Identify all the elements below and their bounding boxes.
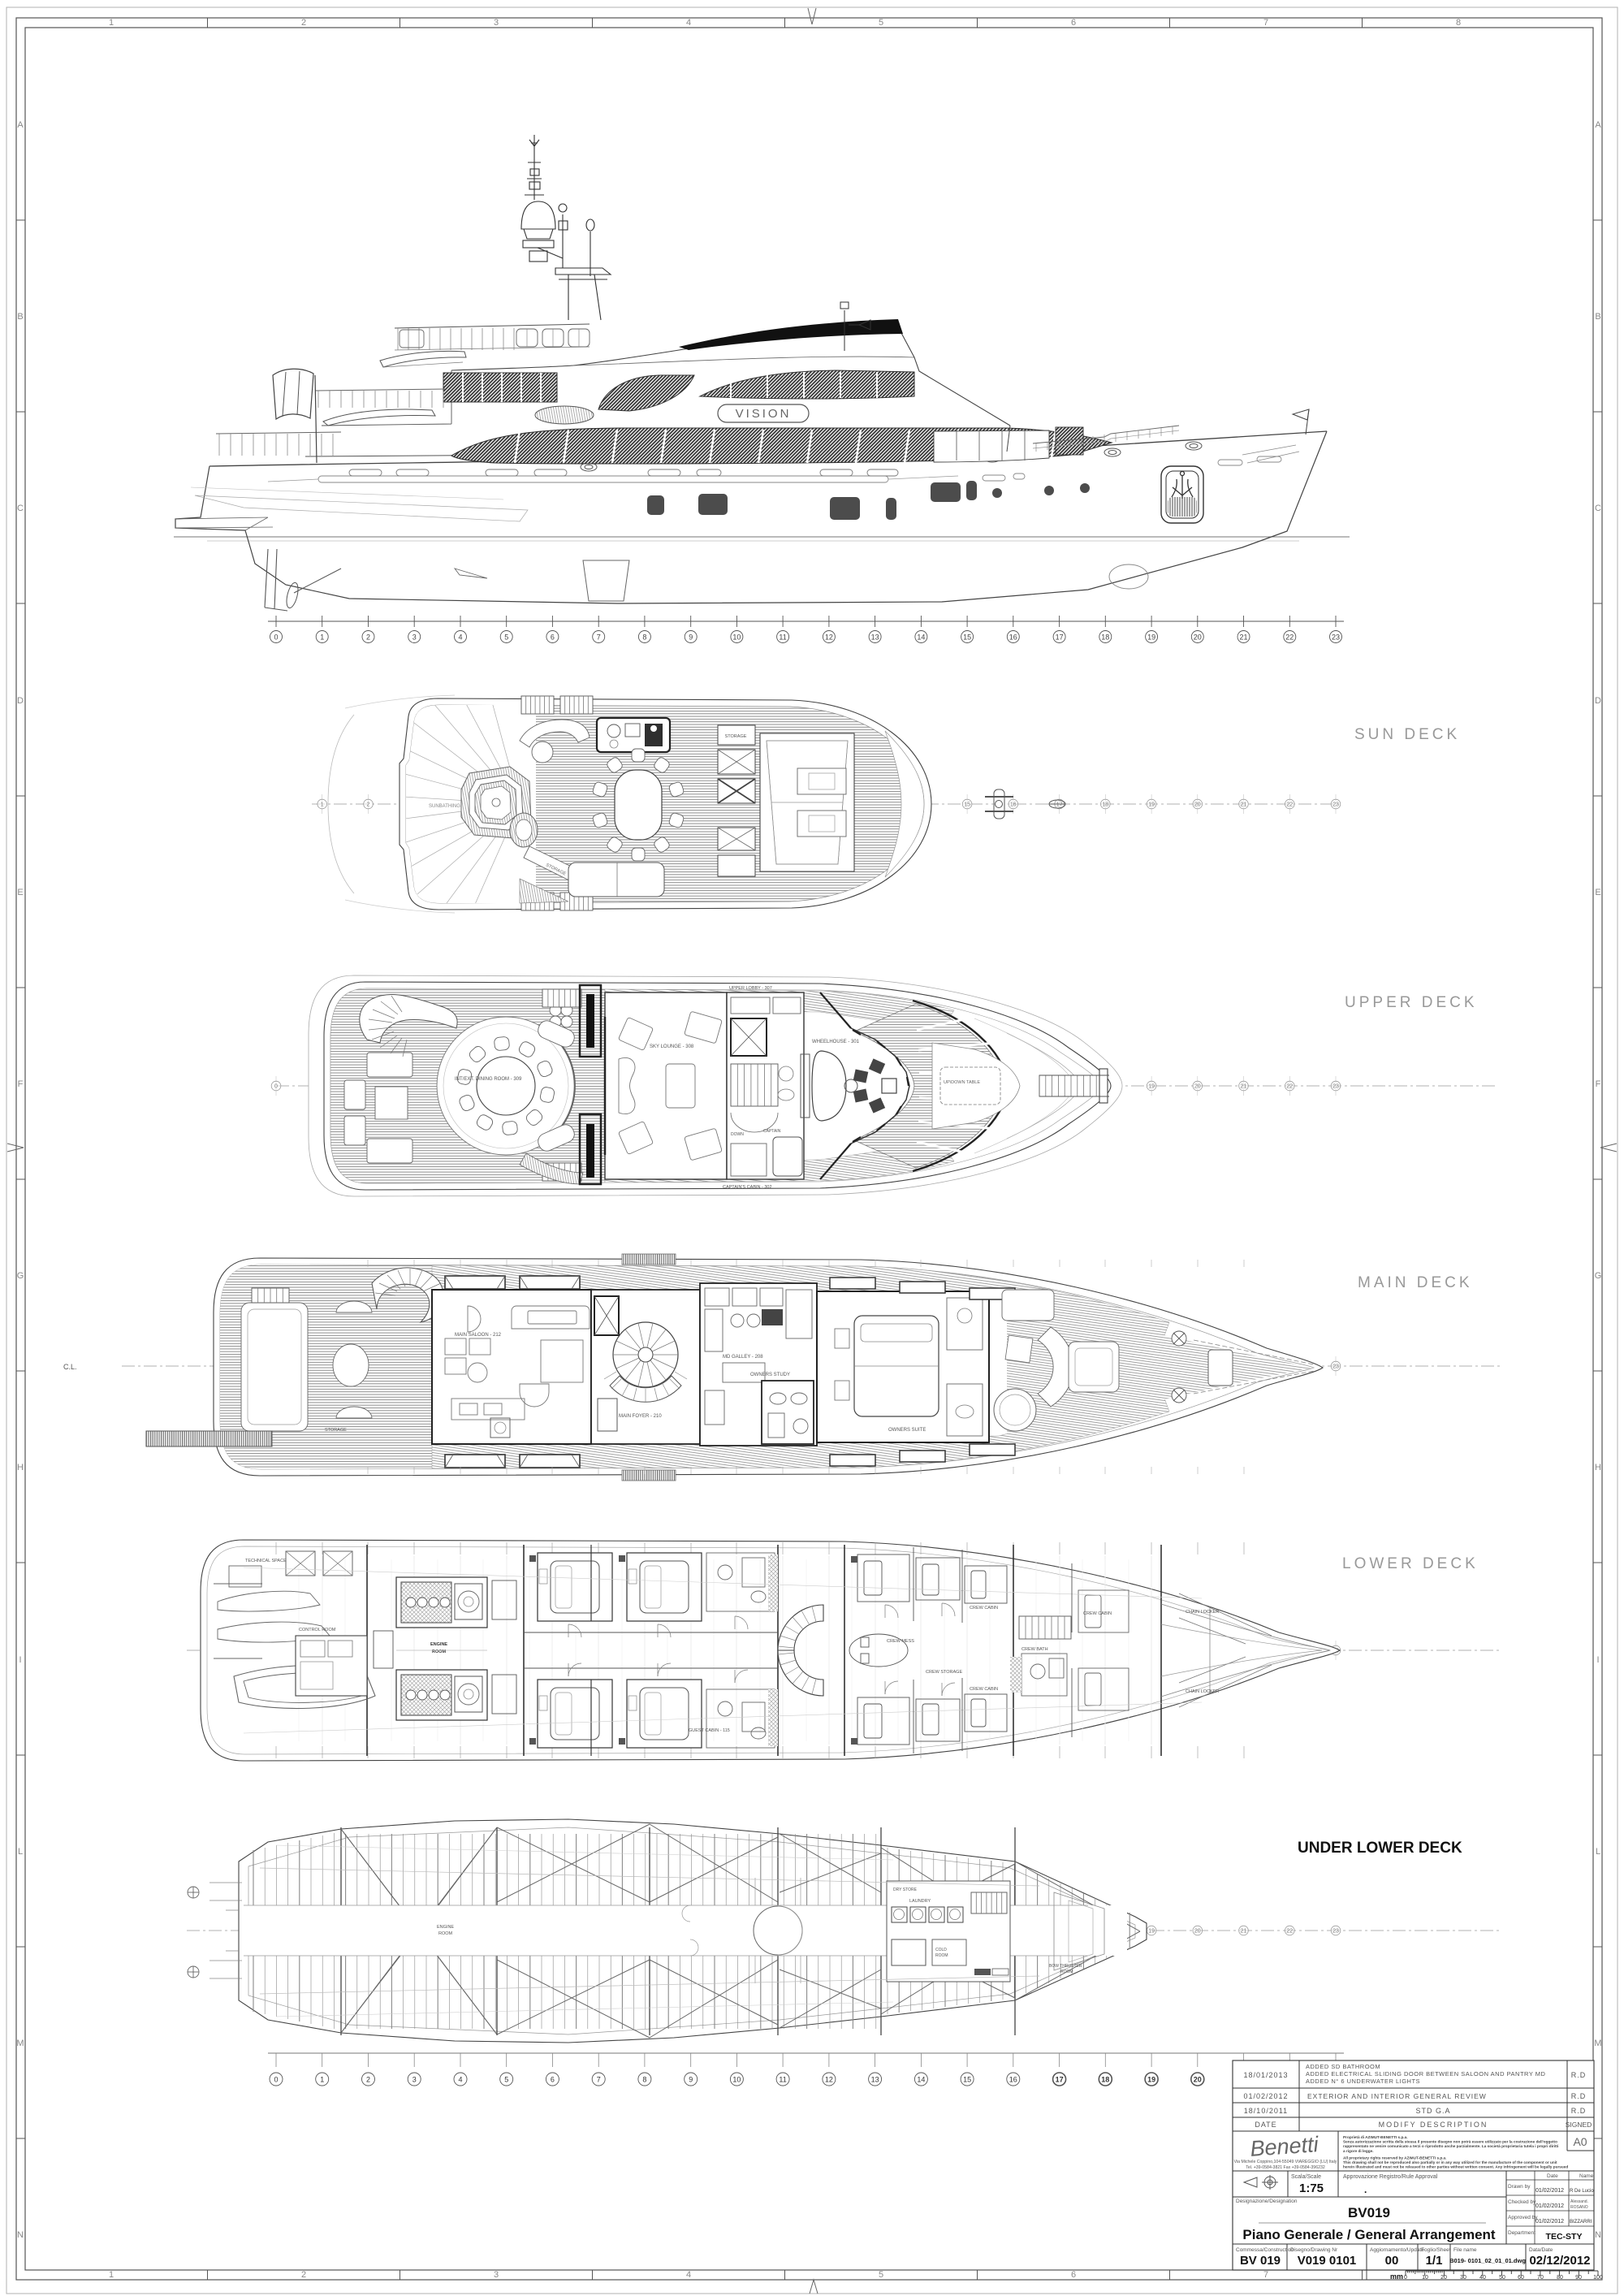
svg-text:16: 16 <box>1009 633 1017 642</box>
svg-text:13: 13 <box>871 633 879 642</box>
svg-text:0: 0 <box>1404 2275 1407 2281</box>
svg-text:5: 5 <box>879 2270 883 2280</box>
svg-text:7: 7 <box>1263 2270 1268 2280</box>
svg-text:17: 17 <box>1056 802 1063 808</box>
svg-text:SKY LOUNGE - 308: SKY LOUNGE - 308 <box>650 1044 694 1049</box>
svg-text:6: 6 <box>1071 18 1076 28</box>
svg-text:UNDER LOWER DECK: UNDER LOWER DECK <box>1298 1840 1462 1857</box>
svg-text:3: 3 <box>494 18 499 28</box>
svg-text:2: 2 <box>366 633 370 642</box>
svg-text:18: 18 <box>1101 2076 1109 2084</box>
svg-text:LAUNDRY: LAUNDRY <box>909 1899 931 1904</box>
svg-text:Department: Department <box>1508 2230 1535 2236</box>
svg-text:14: 14 <box>917 633 925 642</box>
svg-text:C: C <box>17 504 24 513</box>
svg-text:01/02/2012: 01/02/2012 <box>1535 2203 1564 2209</box>
svg-text:BV019: BV019 <box>1348 2205 1390 2220</box>
svg-text:3: 3 <box>412 2076 417 2084</box>
svg-text:1: 1 <box>320 2076 324 2084</box>
svg-text:Senza autorizzazione scritta d: Senza autorizzazione scritta della stess… <box>1343 2140 1557 2144</box>
svg-text:4: 4 <box>686 18 691 28</box>
svg-text:D: D <box>1595 696 1601 706</box>
svg-text:50: 50 <box>1499 2275 1505 2281</box>
svg-text:SIGNED: SIGNED <box>1566 2121 1592 2129</box>
svg-text:WHEELHOUSE - 301: WHEELHOUSE - 301 <box>812 1040 860 1044</box>
svg-text:This drawing shall not be repr: This drawing shall not be reproduced als… <box>1343 2160 1557 2164</box>
svg-text:4: 4 <box>458 633 462 642</box>
svg-text:Approved by: Approved by <box>1508 2215 1538 2220</box>
svg-text:TECHNICAL SPACE: TECHNICAL SPACE <box>245 1559 287 1563</box>
svg-text:N: N <box>17 2230 24 2240</box>
svg-text:ROOM: ROOM <box>1060 1970 1073 1974</box>
svg-text:OWNERS STUDY: OWNERS STUDY <box>750 1373 790 1377</box>
svg-text:5: 5 <box>504 2076 508 2084</box>
svg-text:80: 80 <box>1557 2275 1563 2281</box>
svg-text:D: D <box>17 696 24 706</box>
svg-text:M: M <box>16 2039 24 2048</box>
svg-text:CREW BATH: CREW BATH <box>1021 1647 1048 1652</box>
svg-text:Data/Date: Data/Date <box>1529 2247 1553 2253</box>
svg-text:ROOM: ROOM <box>438 1931 453 1936</box>
svg-text:.: . <box>1364 2184 1367 2195</box>
svg-text:10: 10 <box>1422 2275 1428 2281</box>
svg-text:Checked by: Checked by <box>1508 2199 1536 2205</box>
svg-text:60: 60 <box>1518 2275 1524 2281</box>
svg-text:Drawn by: Drawn by <box>1508 2184 1531 2190</box>
svg-text:mm: mm <box>1390 2272 1403 2281</box>
svg-text:23: 23 <box>1332 1364 1339 1370</box>
svg-text:CREW CABIN: CREW CABIN <box>1083 1611 1112 1616</box>
svg-text:CHAIN LOCKER: CHAIN LOCKER <box>1186 1610 1219 1615</box>
svg-text:R.D: R.D <box>1571 2092 1587 2100</box>
svg-text:16: 16 <box>1009 2076 1017 2084</box>
svg-text:N: N <box>1595 2230 1601 2240</box>
svg-text:G: G <box>1595 1271 1602 1281</box>
svg-text:I: I <box>19 1655 21 1665</box>
svg-text:UP\DOWN TABLE: UP\DOWN TABLE <box>944 1080 980 1085</box>
svg-text:CAPTAIN'S CABIN - 302: CAPTAIN'S CABIN - 302 <box>723 1185 772 1190</box>
svg-text:5: 5 <box>504 633 508 642</box>
svg-text:13: 13 <box>871 2076 879 2084</box>
svg-text:EXTERIOR AND INTERIOR GENERAL: EXTERIOR AND INTERIOR GENERAL REVIEW <box>1307 2092 1487 2100</box>
svg-text:I: I <box>1596 1655 1599 1665</box>
svg-text:9: 9 <box>689 2076 693 2084</box>
svg-text:STORAGE: STORAGE <box>325 1428 347 1433</box>
svg-text:CREW CABIN: CREW CABIN <box>970 1606 998 1611</box>
svg-text:B019- 0101_02_01_01.dwg: B019- 0101_02_01_01.dwg <box>1449 2257 1526 2264</box>
svg-text:21: 21 <box>1241 1929 1247 1935</box>
svg-text:20: 20 <box>1194 2076 1202 2084</box>
svg-text:CREW MESS: CREW MESS <box>887 1639 914 1644</box>
svg-text:6: 6 <box>551 633 555 642</box>
svg-text:M: M <box>1594 2039 1601 2048</box>
svg-text:Proprietà di AZIMUT-BENETTI s.: Proprietà di AZIMUT-BENETTI s.p.a. <box>1343 2135 1408 2139</box>
svg-text:Commessa/Construction: Commessa/Construction <box>1236 2247 1294 2253</box>
svg-text:22: 22 <box>1285 633 1294 642</box>
svg-text:23: 23 <box>1332 802 1339 808</box>
svg-text:rappresentato ne venire comuni: rappresentato ne venire comunicato a ter… <box>1343 2144 1558 2148</box>
svg-text:MD GALLEY - 208: MD GALLEY - 208 <box>723 1355 763 1360</box>
svg-text:0: 0 <box>274 633 278 642</box>
svg-text:COLD: COLD <box>935 1948 947 1952</box>
svg-text:H: H <box>1595 1463 1601 1472</box>
svg-text:20: 20 <box>1440 2275 1447 2281</box>
svg-text:H: H <box>17 1463 24 1472</box>
svg-text:Name: Name <box>1579 2173 1594 2179</box>
svg-text:0: 0 <box>274 2076 278 2084</box>
svg-text:CONTROL ROOM: CONTROL ROOM <box>299 1628 336 1632</box>
svg-text:L: L <box>18 1847 23 1857</box>
svg-text:F: F <box>1596 1079 1601 1089</box>
svg-text:2: 2 <box>367 802 370 808</box>
svg-text:17: 17 <box>1056 2076 1064 2084</box>
svg-text:Designazione/Designation: Designazione/Designation <box>1236 2199 1298 2204</box>
svg-text:DOWN: DOWN <box>731 1132 744 1137</box>
svg-text:4: 4 <box>458 2076 462 2084</box>
svg-text:14: 14 <box>917 2076 925 2084</box>
svg-text:C.L.: C.L. <box>63 1363 77 1371</box>
svg-text:8: 8 <box>642 633 646 642</box>
svg-text:9: 9 <box>689 633 693 642</box>
svg-text:CREW CABIN: CREW CABIN <box>970 1687 998 1692</box>
svg-text:90: 90 <box>1575 2275 1582 2281</box>
svg-text:1: 1 <box>320 633 324 642</box>
svg-text:12: 12 <box>825 2076 833 2084</box>
svg-text:19: 19 <box>1148 1084 1155 1090</box>
svg-text:23: 23 <box>1332 633 1340 642</box>
svg-text:Tel. +39-0584-3821 Fax +39-058: Tel. +39-0584-3821 Fax +39-0584-396232 <box>1246 2165 1325 2170</box>
svg-text:L: L <box>1596 1847 1600 1857</box>
svg-text:20: 20 <box>1194 1929 1201 1935</box>
svg-text:7: 7 <box>597 2076 601 2084</box>
svg-text:23: 23 <box>1332 1084 1339 1090</box>
svg-text:SUN DECK: SUN DECK <box>1354 726 1460 743</box>
svg-text:1: 1 <box>109 2270 114 2280</box>
svg-text:7: 7 <box>1263 18 1268 28</box>
svg-text:BIZZARRI: BIZZARRI <box>1570 2220 1592 2225</box>
svg-text:INT/EXT. DINING ROOM - 309: INT/EXT. DINING ROOM - 309 <box>455 1077 522 1082</box>
svg-text:15: 15 <box>963 2076 971 2084</box>
svg-text:1: 1 <box>321 802 324 808</box>
svg-text:01/02/2012: 01/02/2012 <box>1535 2219 1564 2225</box>
svg-text:Approvazione Registro/Rule App: Approvazione Registro/Rule Approval <box>1343 2174 1438 2180</box>
svg-text:BOW THRUSTER: BOW THRUSTER <box>1049 1964 1082 1969</box>
svg-text:Disegno/Drawing Nr: Disegno/Drawing Nr <box>1290 2247 1338 2253</box>
svg-text:Alessand.: Alessand. <box>1570 2199 1588 2204</box>
svg-text:02/12/2012: 02/12/2012 <box>1529 2254 1590 2268</box>
svg-text:SUNBATHING: SUNBATHING <box>429 804 460 809</box>
svg-text:MODIFY DESCRIPTION: MODIFY DESCRIPTION <box>1379 2121 1488 2129</box>
svg-text:ROSANO: ROSANO <box>1570 2205 1588 2210</box>
svg-text:3: 3 <box>494 2270 499 2280</box>
svg-text:5: 5 <box>879 18 883 28</box>
svg-text:A: A <box>17 120 24 130</box>
svg-text:6: 6 <box>1071 2270 1076 2280</box>
svg-text:1/1: 1/1 <box>1426 2254 1443 2268</box>
svg-text:All proprietary rights reserve: All proprietary rights reserved by AZIMU… <box>1343 2155 1446 2160</box>
svg-text:E: E <box>1595 888 1600 897</box>
svg-text:ADDED ELECTRICAL SLIDING DOOR: ADDED ELECTRICAL SLIDING DOOR BETWEEN SA… <box>1306 2070 1546 2078</box>
svg-text:Via Michele Coppino,104-55049: Via Michele Coppino,104-55049 VIAREGGIO … <box>1234 2160 1337 2164</box>
svg-text:TEC-STY: TEC-STY <box>1546 2232 1583 2242</box>
svg-text:19: 19 <box>1147 2076 1155 2084</box>
svg-text:ADDED N° 6 UNDERWATER LIGHTS: ADDED N° 6 UNDERWATER LIGHTS <box>1306 2078 1420 2085</box>
svg-text:BV 019: BV 019 <box>1240 2254 1281 2268</box>
svg-text:A0: A0 <box>1573 2135 1587 2148</box>
svg-text:B: B <box>17 312 23 322</box>
svg-text:Date: Date <box>1547 2173 1558 2179</box>
svg-text:8: 8 <box>642 2076 646 2084</box>
svg-text:File name: File name <box>1453 2247 1477 2253</box>
svg-text:01/02/2012: 01/02/2012 <box>1535 2188 1564 2194</box>
svg-text:10: 10 <box>732 2076 741 2084</box>
svg-text:R De Lucio: R De Lucio <box>1570 2189 1594 2194</box>
svg-text:OWNERS SUITE: OWNERS SUITE <box>888 1428 926 1433</box>
svg-text:MAIN FOYER - 210: MAIN FOYER - 210 <box>619 1414 662 1419</box>
svg-text:Piano Generale / General Arran: Piano Generale / General Arrangement <box>1242 2227 1495 2242</box>
svg-text:R.D: R.D <box>1571 2107 1587 2115</box>
svg-text:12: 12 <box>825 633 833 642</box>
svg-text:18/10/2011: 18/10/2011 <box>1244 2107 1288 2115</box>
svg-text:0: 0 <box>274 1084 278 1090</box>
svg-text:ADDED SD BATHROOM: ADDED SD BATHROOM <box>1306 2063 1380 2070</box>
svg-text:40: 40 <box>1479 2275 1486 2281</box>
svg-text:1: 1 <box>109 18 114 28</box>
svg-text:Benetti: Benetti <box>1250 2132 1320 2161</box>
svg-text:Aggiornamento/Update: Aggiornamento/Update <box>1370 2247 1424 2253</box>
svg-text:UPPER LOBBY - 307: UPPER LOBBY - 307 <box>729 986 772 991</box>
svg-text:20: 20 <box>1194 802 1201 808</box>
svg-text:19: 19 <box>1147 633 1155 642</box>
svg-text:R.D: R.D <box>1571 2071 1587 2079</box>
svg-text:7: 7 <box>597 633 601 642</box>
svg-text:00: 00 <box>1385 2254 1399 2268</box>
svg-text:22: 22 <box>1286 802 1293 808</box>
svg-text:MAIN DECK: MAIN DECK <box>1358 1274 1473 1291</box>
svg-text:2: 2 <box>301 2270 306 2280</box>
svg-text:20: 20 <box>1194 1084 1201 1090</box>
svg-text:2: 2 <box>301 18 306 28</box>
svg-text:100: 100 <box>1593 2275 1603 2281</box>
svg-text:ENGINE: ENGINE <box>430 1642 447 1647</box>
svg-text:22: 22 <box>1286 1929 1293 1935</box>
svg-text:Foglio/Sheet: Foglio/Sheet <box>1421 2247 1451 2253</box>
svg-text:A: A <box>1595 120 1601 130</box>
svg-text:DATE: DATE <box>1255 2121 1276 2129</box>
svg-text:4: 4 <box>686 2270 691 2280</box>
svg-text:F: F <box>18 1079 24 1089</box>
svg-text:V019 0101: V019 0101 <box>1298 2254 1357 2268</box>
svg-text:LOWER DECK: LOWER DECK <box>1342 1555 1479 1572</box>
svg-text:15: 15 <box>964 802 970 808</box>
svg-text:18/01/2013: 18/01/2013 <box>1243 2071 1288 2079</box>
svg-text:15: 15 <box>963 633 971 642</box>
svg-text:18: 18 <box>1102 802 1108 808</box>
svg-text:21: 21 <box>1239 633 1247 642</box>
svg-text:ROOM: ROOM <box>935 1953 948 1958</box>
svg-text:G: G <box>17 1271 24 1281</box>
svg-text:herein illustrated and must no: herein illustrated and must not be relea… <box>1343 2165 1568 2169</box>
svg-text:Scala/Scale: Scala/Scale <box>1291 2174 1321 2180</box>
svg-text:MAIN SALOON - 212: MAIN SALOON - 212 <box>455 1333 502 1338</box>
svg-text:B: B <box>1595 312 1600 322</box>
svg-text:STD G.A: STD G.A <box>1415 2107 1450 2115</box>
svg-text:2: 2 <box>366 2076 370 2084</box>
svg-text:CAPTAIN: CAPTAIN <box>763 1129 781 1134</box>
svg-text:6: 6 <box>551 2076 555 2084</box>
svg-text:E: E <box>17 888 23 897</box>
svg-text:C: C <box>1595 504 1601 513</box>
svg-text:CHAIN LOCKER: CHAIN LOCKER <box>1186 1689 1219 1694</box>
svg-text:10: 10 <box>732 633 741 642</box>
svg-text:STORAGE: STORAGE <box>725 734 747 739</box>
svg-text:CREW STORAGE: CREW STORAGE <box>926 1670 962 1675</box>
svg-text:19: 19 <box>1148 802 1155 808</box>
svg-text:a rigore di legge.: a rigore di legge. <box>1343 2149 1374 2153</box>
svg-text:21: 21 <box>1241 802 1247 808</box>
svg-text:11: 11 <box>779 633 786 642</box>
svg-text:18: 18 <box>1101 633 1109 642</box>
svg-text:DRY STORE: DRY STORE <box>893 1887 918 1892</box>
svg-text:GUEST CABIN - 115: GUEST CABIN - 115 <box>689 1728 730 1733</box>
svg-text:UPPER DECK: UPPER DECK <box>1345 994 1478 1011</box>
svg-text:22: 22 <box>1286 1084 1293 1090</box>
svg-text:3: 3 <box>412 633 417 642</box>
svg-text:70: 70 <box>1537 2275 1544 2281</box>
svg-text:11: 11 <box>779 2076 786 2084</box>
svg-text:19: 19 <box>1148 1929 1155 1935</box>
svg-text:17: 17 <box>1056 633 1064 642</box>
svg-text:01/02/2012: 01/02/2012 <box>1243 2092 1288 2100</box>
svg-text:8: 8 <box>1456 18 1461 28</box>
svg-text:ENGINE: ENGINE <box>437 1925 454 1930</box>
svg-text:30: 30 <box>1460 2275 1466 2281</box>
svg-text:1:75: 1:75 <box>1299 2181 1324 2195</box>
svg-text:23: 23 <box>1332 1929 1339 1935</box>
svg-text:16: 16 <box>1010 802 1017 808</box>
svg-text:VISION: VISION <box>736 407 792 421</box>
svg-text:20: 20 <box>1194 633 1202 642</box>
svg-text:21: 21 <box>1241 1084 1247 1090</box>
